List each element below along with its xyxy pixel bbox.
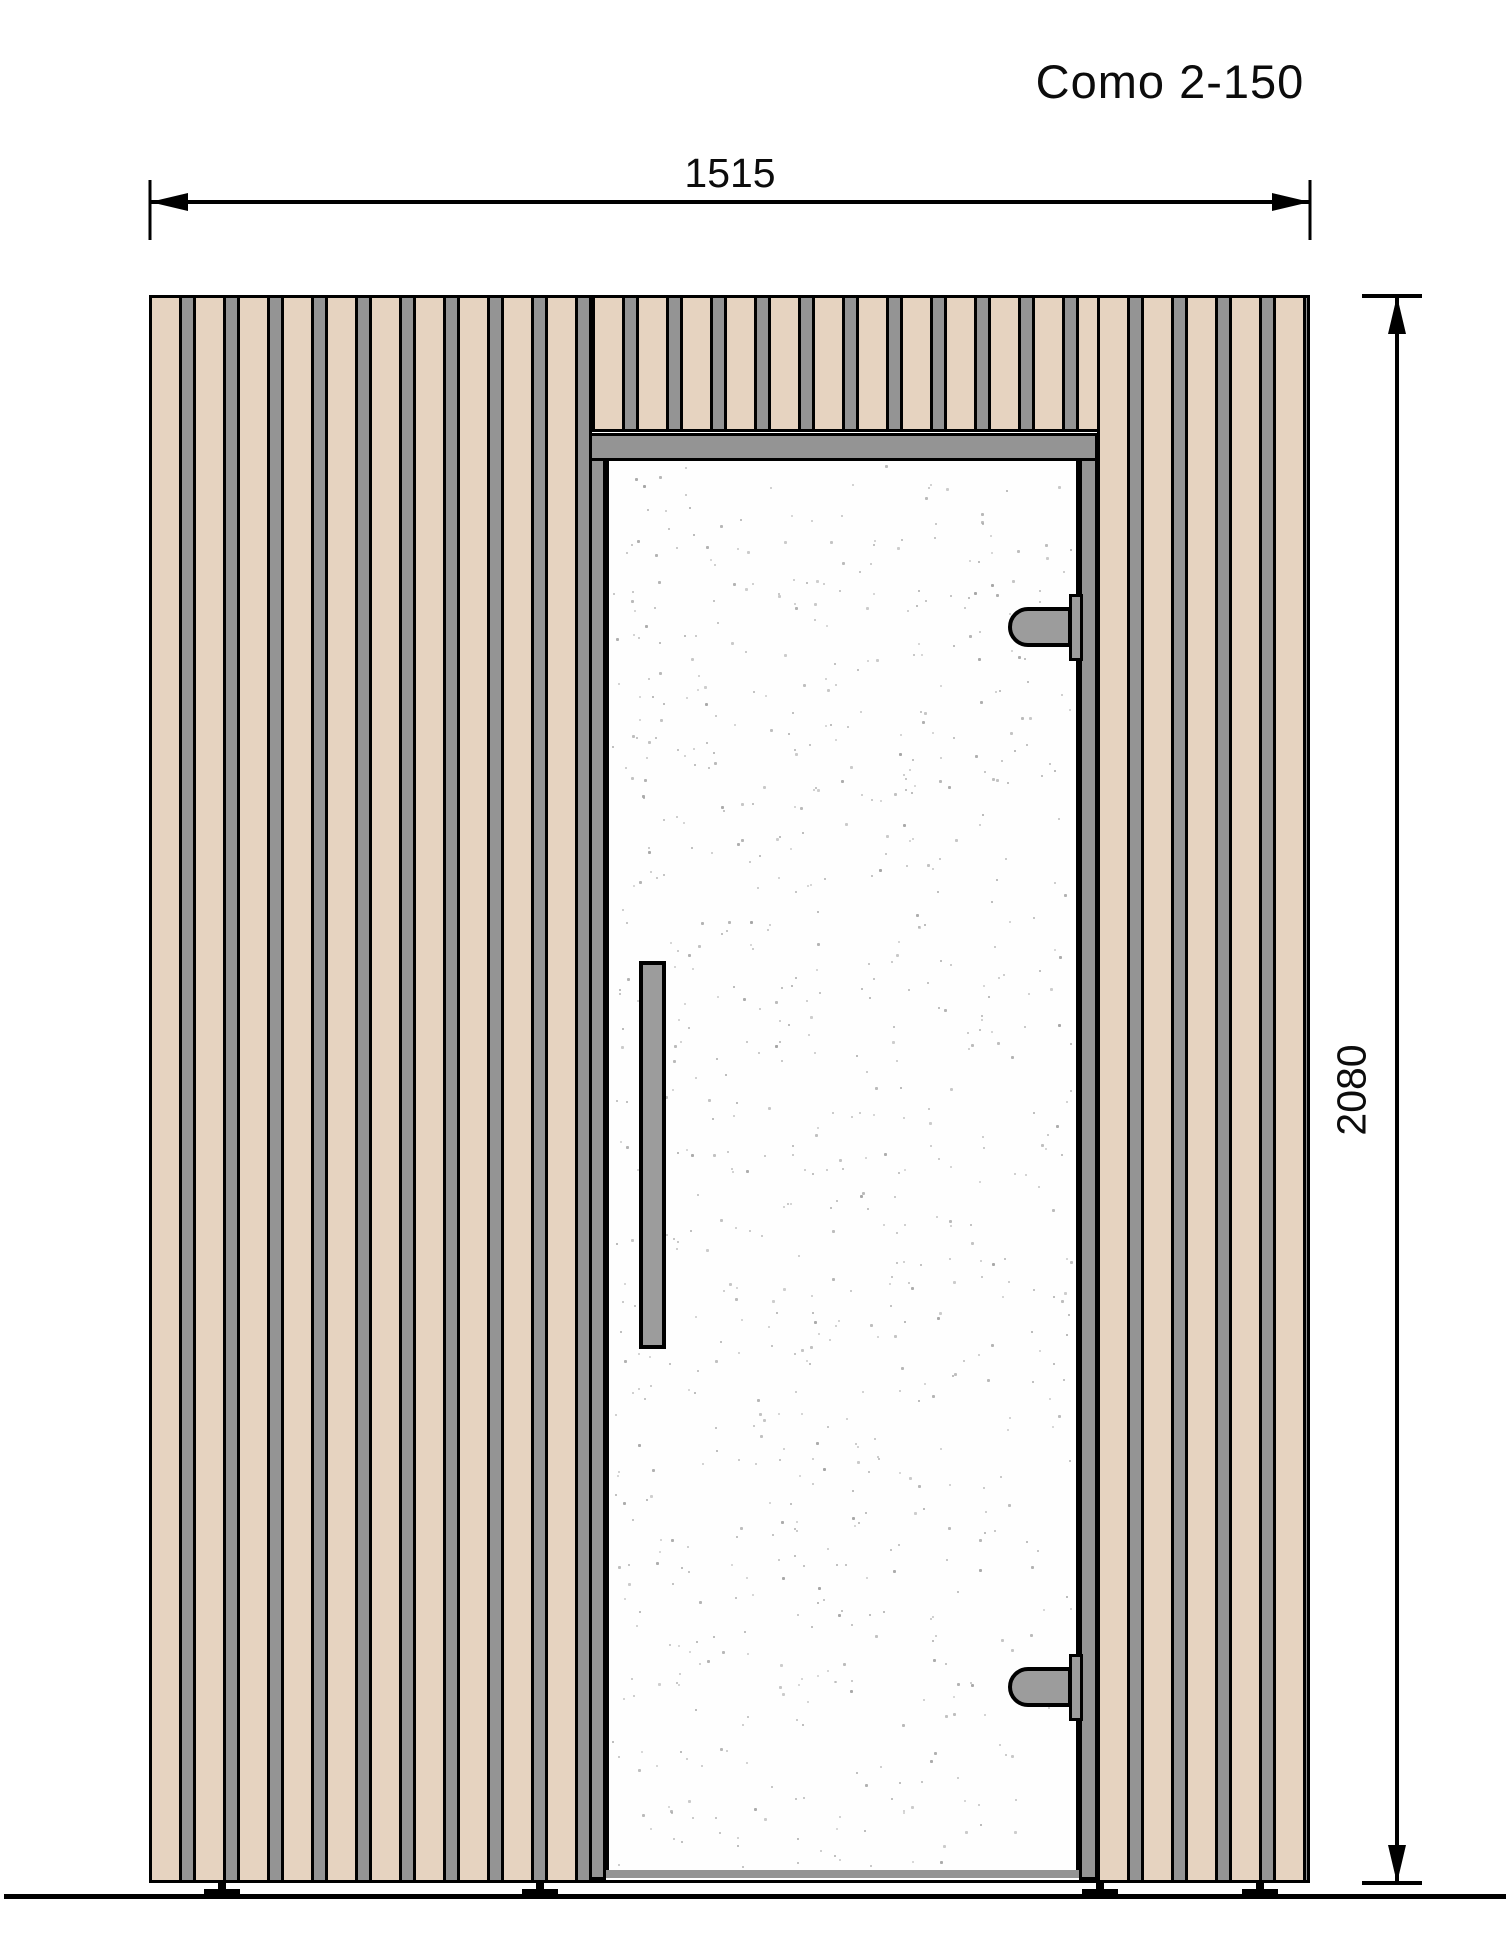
glass-speckle [686, 697, 688, 699]
glass-speckle [903, 1261, 905, 1263]
glass-speckle [839, 590, 841, 592]
glass-speckle [1054, 770, 1056, 772]
glass-speckle [827, 1670, 829, 1672]
glass-speckle [678, 1019, 680, 1021]
glass-speckle [618, 683, 620, 685]
glass-speckle [992, 778, 995, 781]
glass-speckle [716, 1450, 718, 1452]
glass-speckle [908, 989, 910, 991]
glass-speckle [685, 467, 687, 469]
glass-speckle [1052, 1426, 1054, 1428]
glass-speckle [898, 941, 900, 943]
glass-speckle [639, 1611, 641, 1613]
glass-speckle [1058, 486, 1061, 489]
glass-speckle [638, 1444, 641, 1447]
glass-speckle [648, 678, 650, 680]
glass-speckle [883, 1611, 885, 1613]
glass-speckle [631, 600, 634, 603]
glass-speckle [817, 789, 820, 792]
glass-speckle [1015, 1799, 1017, 1801]
glass-speckle [759, 855, 761, 857]
glass-speckle [901, 539, 903, 541]
glass-speckle [832, 1112, 834, 1114]
glass-speckle [1008, 1504, 1011, 1507]
glass-speckle [874, 1438, 876, 1440]
glass-speckle [901, 1367, 904, 1370]
glass-speckle [663, 874, 665, 876]
glass-speckle [814, 1321, 817, 1324]
glass-speckle [911, 1806, 914, 1809]
glass-speckle [937, 891, 939, 893]
glass-speckle [733, 1115, 735, 1117]
glass-speckle [669, 1363, 671, 1365]
glass-speckle [627, 978, 630, 981]
glass-speckle [836, 1828, 838, 1830]
glass-speckle [742, 1724, 744, 1726]
glass-speckle [909, 840, 911, 842]
glass-speckle [757, 1399, 760, 1402]
glass-speckle [953, 1713, 956, 1716]
glass-speckle [953, 645, 955, 647]
glass-speckle [891, 961, 893, 963]
glass-speckle [616, 638, 619, 641]
hinge-knob-icon [1008, 607, 1072, 647]
glass-speckle [715, 1427, 717, 1429]
glass-speckle [998, 977, 1000, 979]
glass-speckle [835, 739, 837, 741]
glass-speckle [688, 1800, 691, 1803]
glass-speckle [940, 1448, 942, 1450]
glass-speckle [796, 1521, 798, 1523]
glass-speckle [999, 1744, 1001, 1746]
glass-speckle [812, 1312, 814, 1314]
glass-speckle [633, 634, 635, 636]
glass-speckle [1014, 1831, 1017, 1834]
glass-speckle [1006, 490, 1008, 492]
glass-speckle [1070, 1608, 1072, 1610]
glass-speckle [792, 1154, 794, 1156]
door-header-frame [589, 433, 1098, 461]
glass-speckle [876, 659, 879, 662]
glass-speckle [750, 944, 752, 946]
glass-speckle [883, 1224, 885, 1226]
glass-speckle [979, 1539, 982, 1542]
glass-speckle [769, 1502, 771, 1504]
glass-speckle [891, 1276, 893, 1278]
glass-speckle [747, 1653, 749, 1655]
glass-speckle [1001, 1639, 1004, 1642]
glass-speckle [940, 1861, 943, 1864]
glass-speckle [684, 1003, 686, 1005]
glass-speckle [695, 1316, 697, 1318]
glass-speckle [792, 712, 794, 714]
glass-speckle [784, 541, 787, 544]
glass-speckle [851, 1680, 853, 1682]
glass-speckle [779, 1020, 781, 1022]
glass-speckle [979, 631, 981, 633]
glass-speckle [691, 658, 694, 661]
page-title: Como 2-150 [950, 54, 1390, 109]
glass-speckle [632, 1519, 634, 1521]
glass-speckle [968, 597, 970, 599]
glass-speckle [911, 792, 913, 794]
glass-speckle [673, 1060, 676, 1063]
glass-speckle [1041, 775, 1043, 777]
glass-speckle [1066, 1101, 1068, 1103]
glass-speckle [626, 1101, 628, 1103]
glass-speckle [846, 1418, 848, 1420]
glass-speckle [625, 767, 627, 769]
glass-speckle [835, 684, 837, 686]
glass-speckle [859, 571, 861, 573]
height-dimension-label: 2080 [1329, 1044, 1376, 1135]
glass-speckle [797, 1862, 799, 1864]
glass-speckle [695, 635, 697, 637]
glass-speckle [974, 592, 977, 595]
glass-speckle [745, 651, 747, 653]
glass-speckle [685, 494, 687, 496]
glass-speckle [879, 869, 882, 872]
left-wall-slats [152, 298, 592, 1880]
glass-speckle [698, 675, 700, 677]
glass-speckle [913, 654, 915, 656]
glass-speckle [992, 1263, 995, 1266]
glass-speckle [656, 1562, 659, 1565]
glass-speckle [1024, 1026, 1026, 1028]
glass-speckle [867, 660, 869, 662]
glass-speckle [839, 1159, 842, 1162]
glass-speckle [909, 769, 911, 771]
glass-speckle [946, 488, 949, 491]
glass-speckle [807, 1701, 809, 1703]
door-glass-panel [606, 458, 1079, 1877]
glass-speckle [999, 690, 1001, 692]
glass-speckle [698, 945, 701, 948]
glass-speckle [827, 1426, 829, 1428]
glass-speckle [811, 520, 813, 522]
glass-speckle [825, 678, 827, 680]
glass-speckle [823, 1599, 825, 1601]
glass-speckle [714, 564, 716, 566]
glass-speckle [622, 909, 624, 911]
glass-speckle [689, 507, 691, 509]
glass-speckle [1045, 544, 1048, 547]
glass-speckle [924, 712, 927, 715]
glass-speckle [655, 554, 658, 557]
glass-speckle [799, 1475, 801, 1477]
glass-speckle [656, 1765, 658, 1767]
glass-speckle [896, 954, 899, 957]
glass-speckle [660, 1539, 662, 1541]
glass-speckle [869, 1614, 871, 1616]
glass-speckle [949, 1258, 951, 1260]
glass-speckle [970, 1682, 972, 1684]
hinge-plate [1069, 1654, 1083, 1721]
glass-speckle [780, 1664, 783, 1667]
glass-speckle [950, 1088, 953, 1091]
glass-speckle [760, 1435, 763, 1438]
glass-speckle [939, 1312, 942, 1315]
glass-speckle [890, 1549, 892, 1551]
glass-speckle [830, 724, 832, 726]
glass-speckle [649, 1356, 651, 1358]
glass-speckle [928, 1108, 930, 1110]
glass-speckle [620, 1331, 622, 1333]
glass-speckle [893, 1570, 896, 1573]
glass-speckle [744, 1631, 746, 1633]
glass-speckle [648, 741, 651, 744]
glass-speckle [764, 1818, 767, 1821]
glass-speckle [633, 885, 635, 887]
glass-speckle [623, 1502, 626, 1505]
glass-speckle [899, 753, 902, 756]
glass-speckle [746, 1762, 748, 1764]
glass-speckle [631, 544, 633, 546]
glass-speckle [644, 779, 647, 782]
glass-speckle [873, 544, 875, 546]
glass-speckle [1054, 949, 1056, 951]
glass-speckle [850, 766, 853, 769]
glass-speckle [686, 1149, 688, 1151]
glass-speckle [920, 711, 922, 713]
glass-speckle [727, 1151, 729, 1153]
glass-speckle [899, 1782, 901, 1784]
glass-speckle [816, 1442, 819, 1445]
glass-speckle [639, 696, 641, 698]
glass-speckle [885, 465, 888, 468]
glass-speckle [940, 960, 942, 962]
glass-speckle [1003, 974, 1005, 976]
door-left-jamb [589, 458, 606, 1880]
glass-speckle [1017, 550, 1020, 553]
glass-speckle [894, 1196, 896, 1198]
glass-speckle [732, 1171, 734, 1173]
glass-speckle [765, 695, 767, 697]
glass-speckle [975, 755, 978, 758]
glass-speckle [1058, 1415, 1061, 1418]
glass-speckle [690, 1230, 692, 1232]
glass-speckle [948, 786, 951, 789]
glass-speckle [650, 1495, 653, 1498]
glass-speckle [965, 1831, 968, 1834]
glass-speckle [1054, 882, 1056, 884]
leveling-foot-base [204, 1889, 240, 1895]
glass-speckle [1046, 557, 1049, 560]
glass-speckle [867, 1208, 869, 1210]
glass-speckle [673, 1838, 675, 1840]
glass-speckle [769, 924, 771, 926]
glass-speckle [842, 562, 845, 565]
glass-speckle [850, 1290, 852, 1292]
glass-speckle [984, 1714, 986, 1716]
glass-speckle [618, 1756, 620, 1758]
glass-speckle [911, 1287, 914, 1290]
glass-speckle [820, 1850, 822, 1852]
glass-speckle [693, 748, 695, 750]
glass-speckle [954, 1373, 957, 1376]
glass-speckle [830, 1207, 832, 1209]
glass-speckle [823, 583, 825, 585]
glass-speckle [1027, 681, 1029, 683]
glass-speckle [677, 950, 679, 952]
glass-speckle [865, 1157, 867, 1159]
glass-speckle [936, 1216, 938, 1218]
glass-speckle [852, 1490, 854, 1492]
glass-speckle [921, 1781, 923, 1783]
glass-speckle [681, 1841, 683, 1843]
glass-speckle [997, 1042, 1000, 1045]
glass-speckle [978, 561, 980, 563]
glass-speckle [733, 986, 735, 988]
glass-speckle [873, 1114, 875, 1116]
glass-speckle [731, 1564, 733, 1566]
glass-speckle [1012, 580, 1015, 583]
glass-speckle [817, 911, 819, 913]
glass-speckle [983, 1487, 985, 1489]
glass-speckle [633, 1695, 635, 1697]
glass-speckle [845, 1564, 847, 1566]
glass-speckle [815, 1134, 818, 1137]
glass-speckle [866, 1577, 868, 1579]
glass-speckle [783, 1448, 785, 1450]
glass-speckle [832, 1230, 835, 1233]
glass-speckle [838, 1320, 840, 1322]
glass-speckle [847, 726, 849, 728]
glass-speckle [1014, 1173, 1016, 1175]
glass-speckle [632, 735, 635, 738]
glass-speckle [985, 1511, 987, 1513]
glass-speckle [1066, 1258, 1068, 1260]
glass-speckle [645, 625, 648, 628]
glass-speckle [628, 1564, 630, 1566]
glass-speckle [713, 752, 715, 754]
glass-speckle [918, 643, 920, 645]
glass-speckle [934, 537, 936, 539]
glass-speckle [979, 1029, 981, 1031]
glass-speckle [775, 1045, 778, 1048]
glass-speckle [839, 1859, 841, 1861]
glass-speckle [916, 914, 919, 917]
glass-speckle [957, 1777, 959, 1779]
glass-speckle [655, 737, 657, 739]
glass-speckle [797, 1838, 799, 1840]
glass-speckle [898, 1172, 900, 1174]
glass-speckle [618, 1471, 620, 1473]
glass-speckle [909, 1477, 912, 1480]
glass-speckle [814, 619, 816, 621]
glass-speckle [957, 1591, 959, 1593]
glass-speckle [1031, 1566, 1034, 1569]
glass-speckle [683, 822, 685, 824]
glass-speckle [812, 1173, 814, 1175]
glass-speckle [705, 703, 708, 706]
glass-speckle [991, 584, 994, 587]
glass-speckle [701, 922, 704, 925]
glass-speckle [721, 806, 724, 809]
glass-speckle [839, 1816, 841, 1818]
glass-speckle [949, 1220, 952, 1223]
glass-speckle [861, 794, 863, 796]
glass-speckle [711, 852, 713, 854]
glass-speckle [779, 836, 781, 838]
glass-speckle [726, 930, 728, 932]
glass-speckle [918, 1400, 920, 1402]
glass-speckle [912, 759, 914, 761]
glass-speckle [871, 875, 873, 877]
glass-speckle [688, 954, 691, 957]
glass-speckle [770, 487, 772, 489]
glass-speckle [1031, 1331, 1033, 1333]
glass-speckle [694, 1392, 696, 1394]
glass-speckle [991, 1344, 994, 1347]
glass-speckle [741, 803, 744, 806]
glass-speckle [620, 1141, 622, 1143]
glass-speckle [706, 742, 708, 744]
glass-speckle [720, 1748, 723, 1751]
glass-speckle [813, 789, 815, 791]
glass-speckle [758, 1052, 760, 1054]
above-door-slats [592, 298, 1097, 432]
glass-speckle [1053, 1363, 1055, 1365]
glass-speckle [830, 541, 833, 544]
glass-speckle [779, 1041, 781, 1043]
glass-speckle [1033, 1289, 1035, 1291]
hinge-knob-icon [1008, 1667, 1072, 1707]
glass-speckle [923, 1699, 925, 1701]
glass-speckle [794, 806, 796, 808]
glass-speckle [984, 1532, 986, 1534]
glass-speckle [737, 1837, 739, 1839]
glass-speckle [688, 1389, 690, 1391]
glass-speckle [880, 800, 882, 802]
glass-speckle [665, 510, 667, 512]
glass-speckle [823, 1468, 826, 1471]
glass-speckle [738, 1459, 740, 1461]
glass-speckle [801, 1413, 803, 1415]
glass-speckle [862, 1391, 864, 1393]
glass-speckle [912, 1861, 914, 1863]
glass-speckle [970, 1224, 972, 1226]
glass-speckle [691, 847, 693, 849]
glass-speckle [759, 1413, 762, 1416]
glass-speckle [689, 1651, 691, 1653]
glass-speckle [659, 642, 661, 644]
glass-speckle [870, 1324, 873, 1327]
glass-speckle [1033, 1112, 1035, 1114]
glass-speckle [1026, 1541, 1028, 1543]
glass-speckle [717, 622, 719, 624]
glass-speckle [877, 1336, 879, 1338]
glass-speckle [801, 1349, 804, 1352]
glass-speckle [790, 1203, 792, 1205]
glass-speckle [1053, 1296, 1055, 1298]
glass-speckle [1007, 782, 1009, 784]
glass-speckle [776, 838, 779, 841]
right-wall-slats [1097, 298, 1307, 1880]
glass-speckle [944, 1009, 947, 1012]
glass-speckle [699, 1601, 702, 1604]
glass-speckle [873, 593, 875, 595]
glass-speckle [708, 767, 710, 769]
glass-speckle [843, 1663, 846, 1666]
glass-speckle [624, 1598, 626, 1600]
glass-speckle [788, 1024, 790, 1026]
glass-speckle [612, 746, 614, 748]
glass-speckle [792, 1145, 794, 1147]
glass-speckle [772, 1300, 775, 1303]
glass-speckle [794, 1555, 796, 1557]
glass-speckle [1038, 1186, 1040, 1188]
